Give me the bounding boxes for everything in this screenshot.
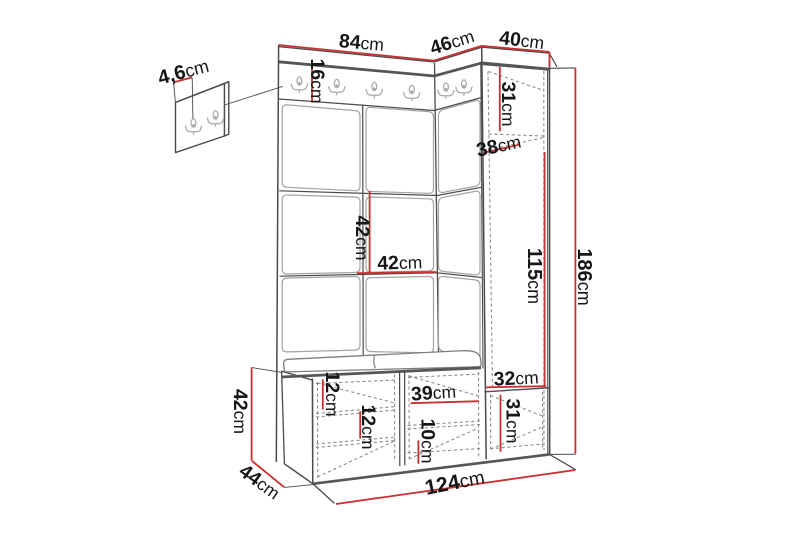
svg-text:16cm: 16cm (306, 58, 328, 103)
svg-text:31cm: 31cm (502, 398, 524, 443)
svg-text:42cm: 42cm (351, 215, 373, 260)
svg-text:10cm: 10cm (417, 418, 439, 463)
svg-text:186cm: 186cm (573, 248, 595, 305)
svg-text:32cm: 32cm (493, 366, 539, 390)
svg-text:39cm: 39cm (410, 380, 457, 405)
svg-text:115cm: 115cm (523, 248, 545, 304)
svg-text:84cm: 84cm (338, 30, 385, 56)
svg-text:12cm: 12cm (321, 371, 343, 416)
svg-text:31cm: 31cm (497, 81, 519, 126)
svg-text:42cm: 42cm (377, 251, 423, 275)
svg-text:12cm: 12cm (357, 404, 379, 449)
svg-text:42cm: 42cm (229, 389, 251, 434)
